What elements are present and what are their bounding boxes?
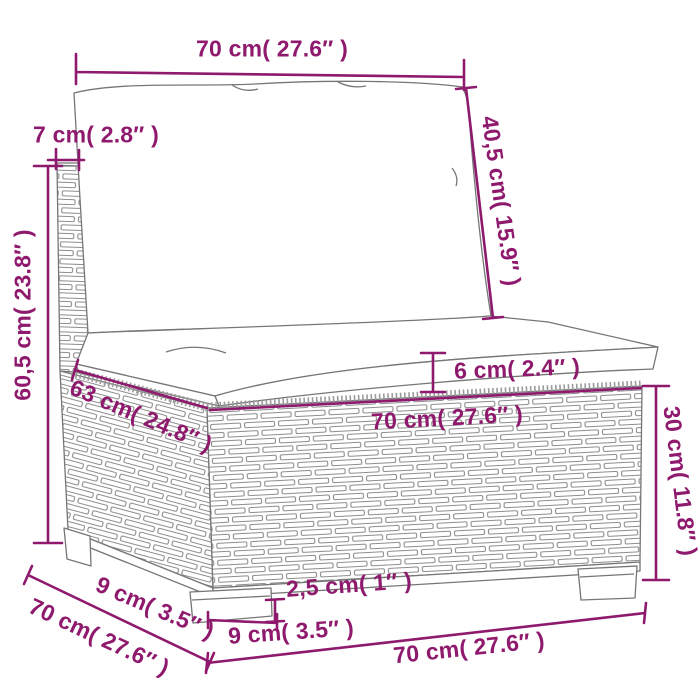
foot-front-right bbox=[578, 566, 637, 600]
label-back-frame-thickness: 7 cm( 2.8″ ) bbox=[33, 124, 159, 147]
label-total-height: 60,5 cm( 23.8″ ) bbox=[12, 229, 35, 400]
back-cushion bbox=[74, 81, 491, 333]
label-back-width: 70 cm( 27.6″ ) bbox=[196, 38, 348, 61]
product-dimension-diagram: 70 cm( 27.6″ ) 40,5 cm( 15.9″ ) 7 cm( 2.… bbox=[0, 0, 700, 700]
sofa-line-art bbox=[57, 81, 658, 623]
label-seat-cushion-thickness: 6 cm( 2.4″ ) bbox=[454, 355, 581, 382]
